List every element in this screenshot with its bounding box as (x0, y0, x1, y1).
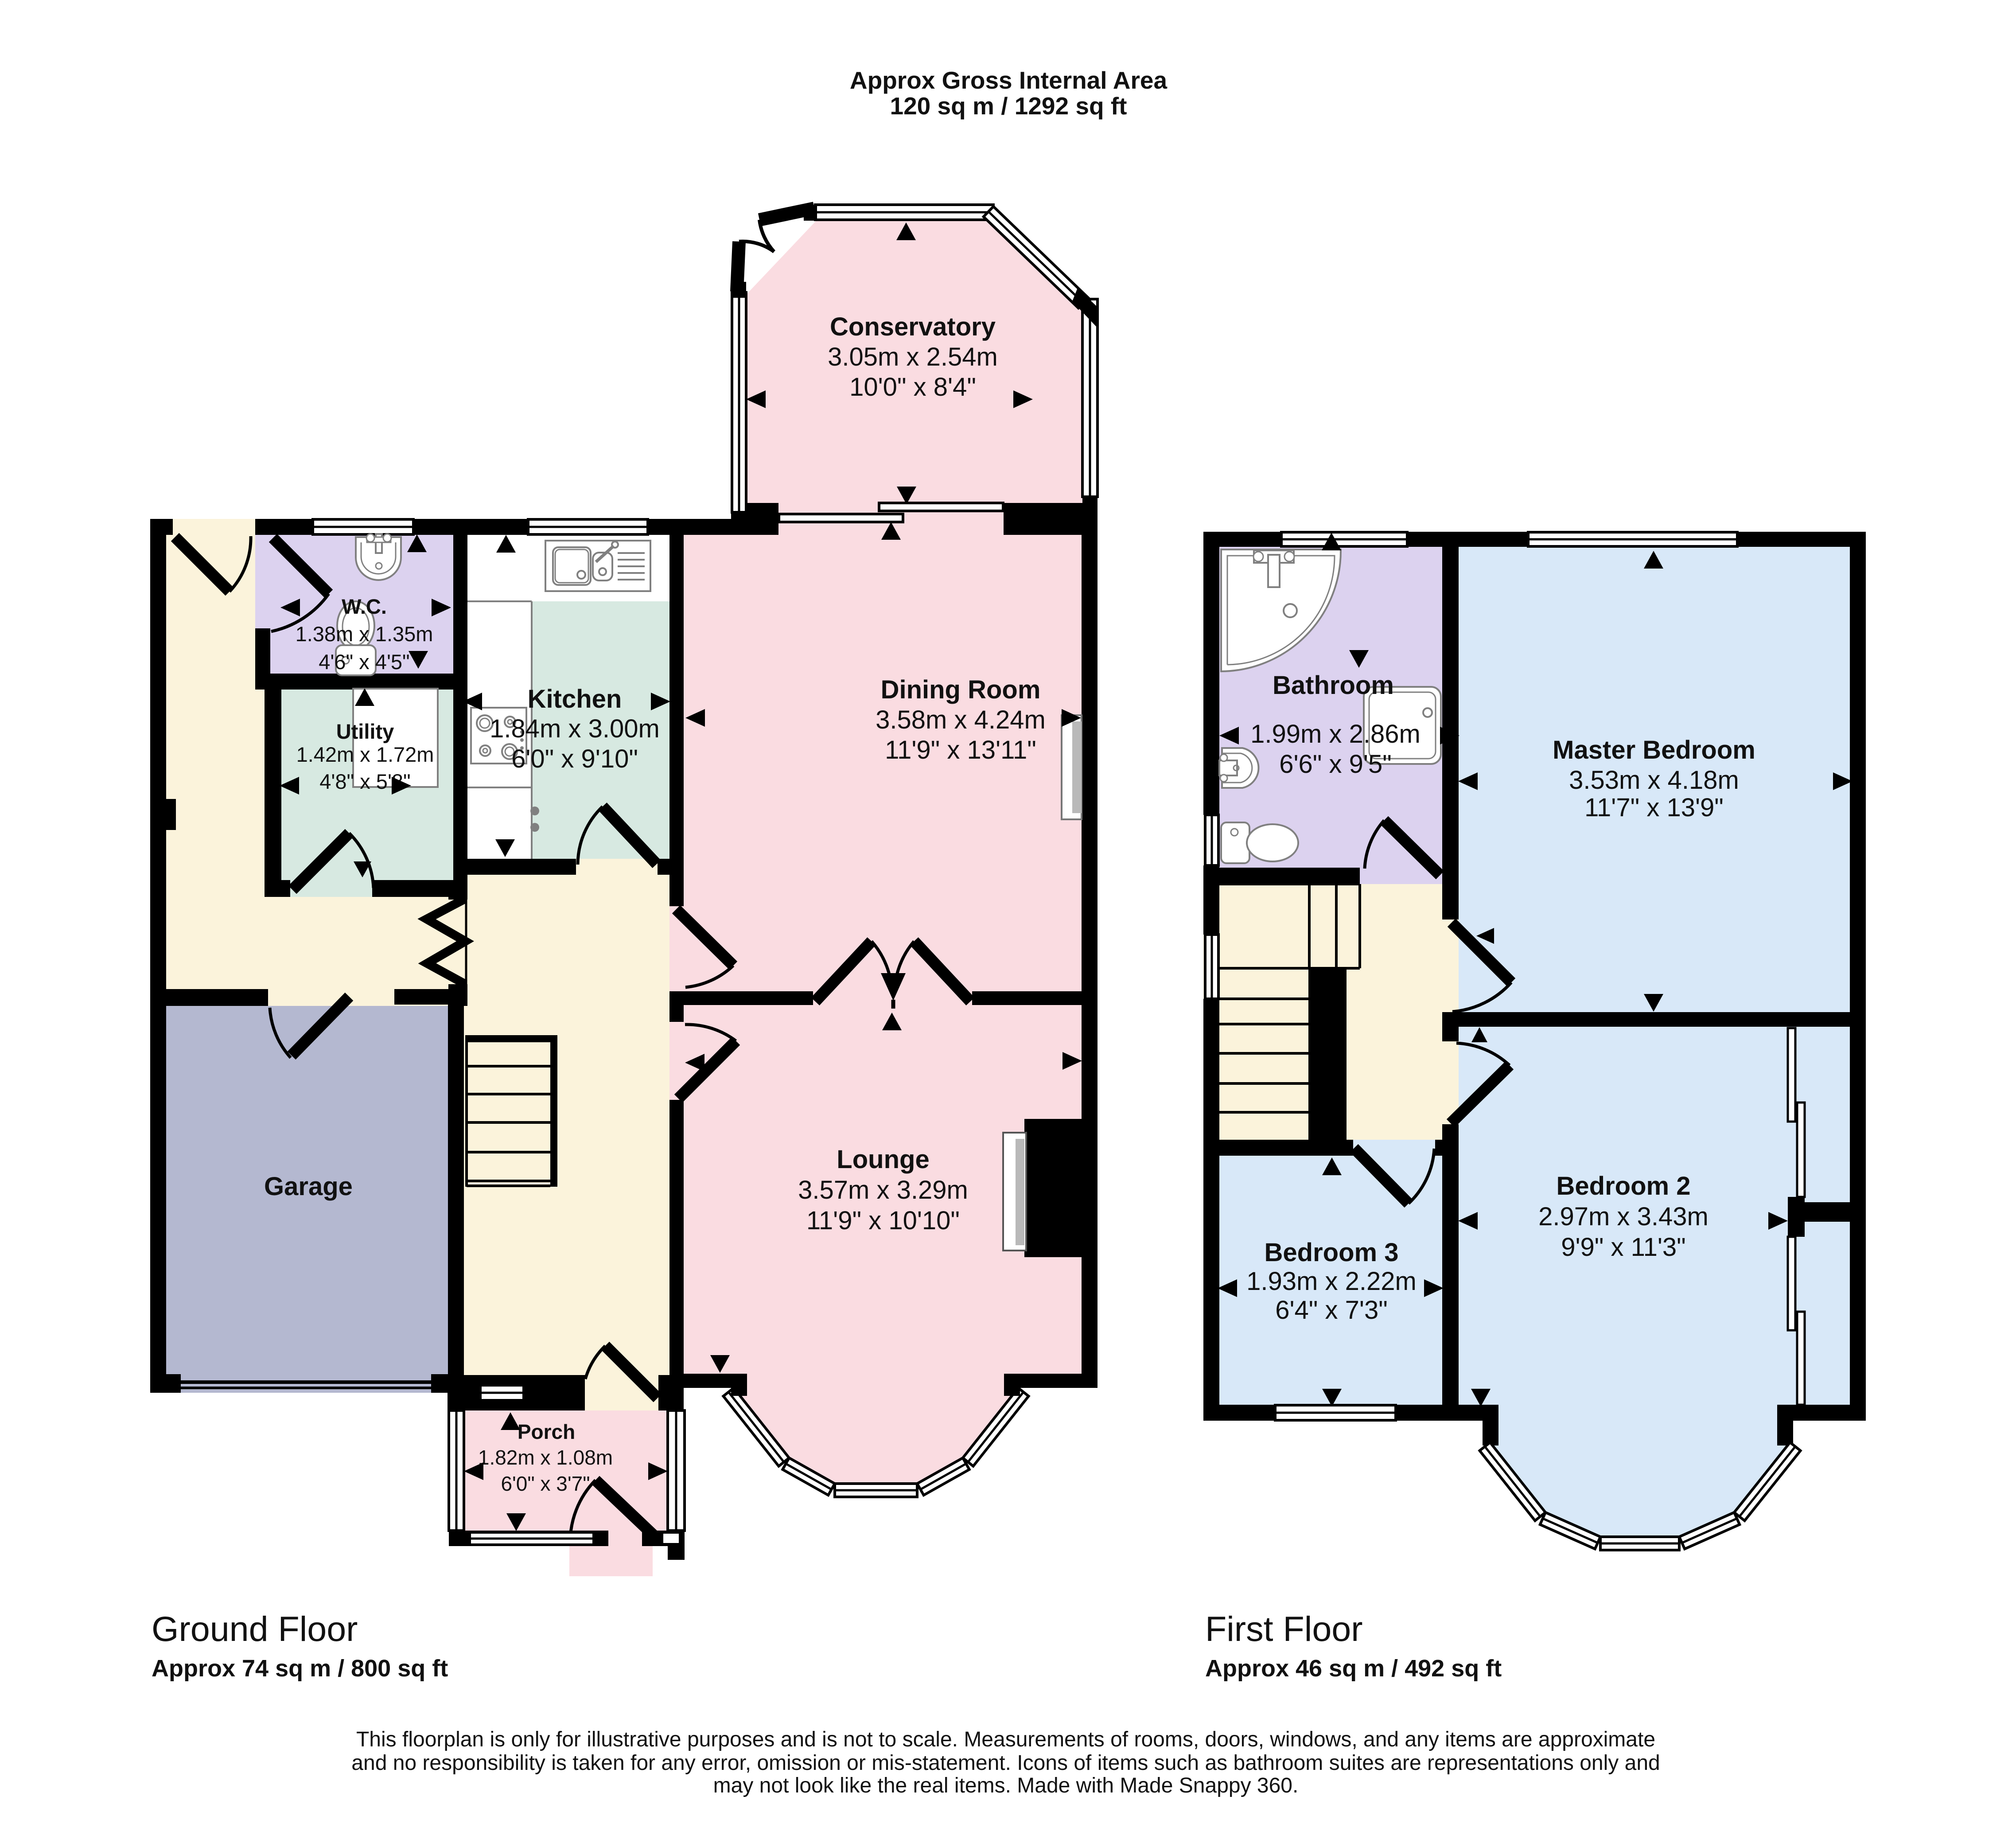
svg-text:9'9" x 11'3": 9'9" x 11'3" (1561, 1233, 1686, 1262)
svg-text:Bedroom 2: Bedroom 2 (1557, 1172, 1691, 1200)
svg-text:Bathroom: Bathroom (1273, 671, 1394, 700)
svg-text:1.84m x 3.00m: 1.84m x 3.00m (490, 714, 660, 743)
svg-text:Approx 74 sq m / 800 sq ft: Approx 74 sq m / 800 sq ft (152, 1655, 448, 1682)
svg-text:10'0" x 8'4": 10'0" x 8'4" (849, 373, 976, 401)
svg-text:Master Bedroom: Master Bedroom (1553, 736, 1755, 764)
svg-text:Conservatory: Conservatory (830, 312, 996, 341)
svg-text:11'9" x 13'11": 11'9" x 13'11" (885, 736, 1036, 764)
svg-text:may not look like the real ite: may not look like the real items. Made w… (713, 1774, 1299, 1797)
svg-text:This floorplan is only for ill: This floorplan is only for illustrative … (356, 1728, 1655, 1751)
svg-text:6'4" x 7'3": 6'4" x 7'3" (1275, 1296, 1388, 1325)
svg-text:6'6" x 9'5": 6'6" x 9'5" (1279, 750, 1392, 779)
svg-text:1.82m x 1.08m: 1.82m x 1.08m (478, 1446, 613, 1469)
svg-text:1.93m x 2.22m: 1.93m x 2.22m (1246, 1267, 1417, 1296)
svg-text:4'6" x 4'5": 4'6" x 4'5" (319, 650, 410, 674)
svg-text:11'9" x 10'10": 11'9" x 10'10" (806, 1206, 960, 1235)
svg-text:Garage: Garage (264, 1172, 353, 1201)
svg-text:Ground Floor: Ground Floor (152, 1609, 358, 1648)
svg-text:2.97m x 3.43m: 2.97m x 3.43m (1538, 1202, 1709, 1231)
svg-text:First Floor: First Floor (1205, 1609, 1363, 1648)
svg-text:120 sq m / 1292 sq ft: 120 sq m / 1292 sq ft (890, 92, 1127, 120)
svg-text:6'0" x 3'7": 6'0" x 3'7" (501, 1472, 590, 1495)
svg-text:Porch: Porch (518, 1420, 575, 1443)
svg-text:and no responsibility is taken: and no responsibility is taken for any e… (351, 1751, 1660, 1775)
svg-text:11'7" x 13'9": 11'7" x 13'9" (1584, 793, 1724, 822)
svg-text:Utility: Utility (336, 720, 394, 743)
svg-text:Dining Room: Dining Room (881, 675, 1041, 704)
svg-text:3.58m x 4.24m: 3.58m x 4.24m (876, 705, 1046, 734)
svg-text:Approx 46 sq m / 492 sq ft: Approx 46 sq m / 492 sq ft (1205, 1655, 1502, 1682)
svg-text:3.57m x 3.29m: 3.57m x 3.29m (798, 1176, 968, 1204)
svg-text:Bedroom 3: Bedroom 3 (1265, 1238, 1399, 1267)
svg-text:1.38m x 1.35m: 1.38m x 1.35m (296, 622, 433, 646)
svg-text:1.99m x 2.86m: 1.99m x 2.86m (1250, 720, 1421, 748)
svg-text:Kitchen: Kitchen (528, 685, 622, 713)
svg-text:3.05m x 2.54m: 3.05m x 2.54m (828, 343, 998, 371)
svg-text:6'0" x 9'10": 6'0" x 9'10" (511, 744, 638, 773)
svg-text:W.C.: W.C. (342, 595, 387, 618)
svg-text:3.53m x 4.18m: 3.53m x 4.18m (1569, 766, 1739, 795)
svg-text:Lounge: Lounge (837, 1145, 929, 1174)
svg-text:1.42m x 1.72m: 1.42m x 1.72m (296, 743, 434, 766)
svg-text:Approx Gross Internal Area: Approx Gross Internal Area (850, 66, 1168, 94)
